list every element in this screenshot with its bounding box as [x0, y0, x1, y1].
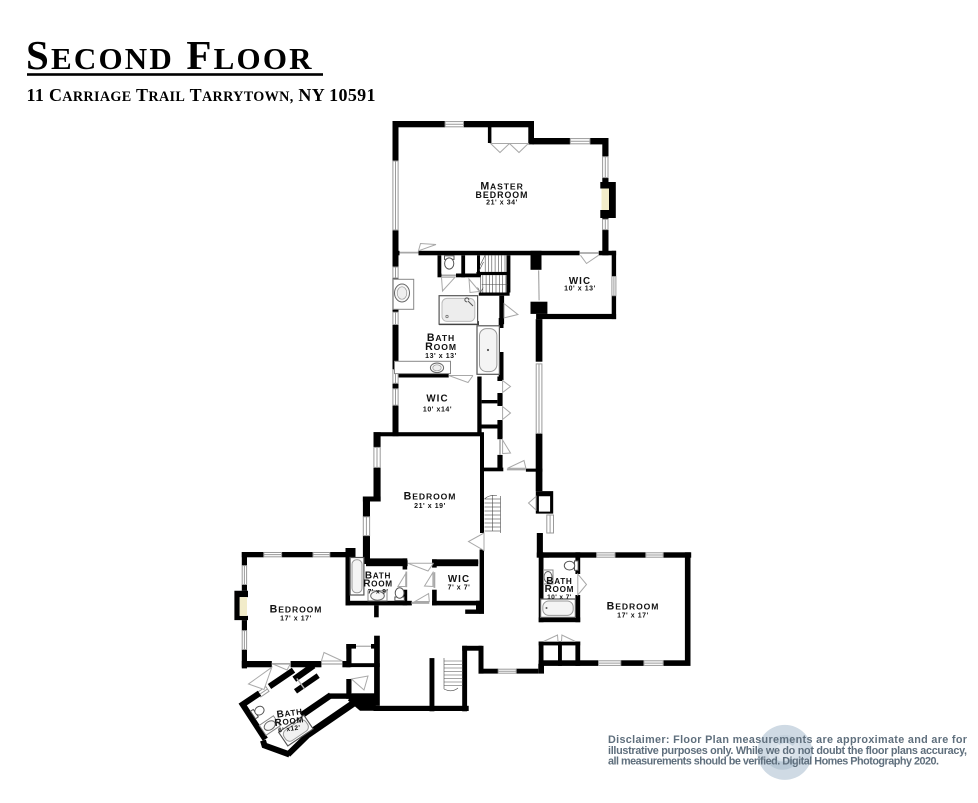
svg-text:10' x 7': 10' x 7'	[547, 594, 572, 601]
svg-text:7' x 7': 7' x 7'	[448, 584, 471, 591]
svg-text:ROOM: ROOM	[425, 341, 457, 353]
svg-text:17' x 17': 17' x 17'	[280, 616, 312, 623]
svg-text:WIC: WIC	[426, 393, 448, 404]
svg-text:all measurements should be ver: all measurements should be verified. Dig…	[608, 756, 939, 768]
svg-text:10' x14': 10' x14'	[423, 406, 452, 413]
svg-text:BEDROOM: BEDROOM	[404, 491, 457, 503]
svg-text:21' x 34': 21' x 34'	[486, 200, 518, 207]
svg-text:BEDROOM: BEDROOM	[270, 603, 323, 615]
svg-text:21' x 19': 21' x 19'	[414, 503, 446, 510]
svg-text:13' x 13': 13' x 13'	[425, 353, 457, 360]
svg-text:BEDROOM: BEDROOM	[607, 600, 660, 612]
svg-text:17' x 17': 17' x 17'	[617, 613, 649, 620]
svg-text:7' x 9': 7' x 9'	[368, 588, 389, 595]
svg-text:10' x 13': 10' x 13'	[564, 285, 596, 292]
